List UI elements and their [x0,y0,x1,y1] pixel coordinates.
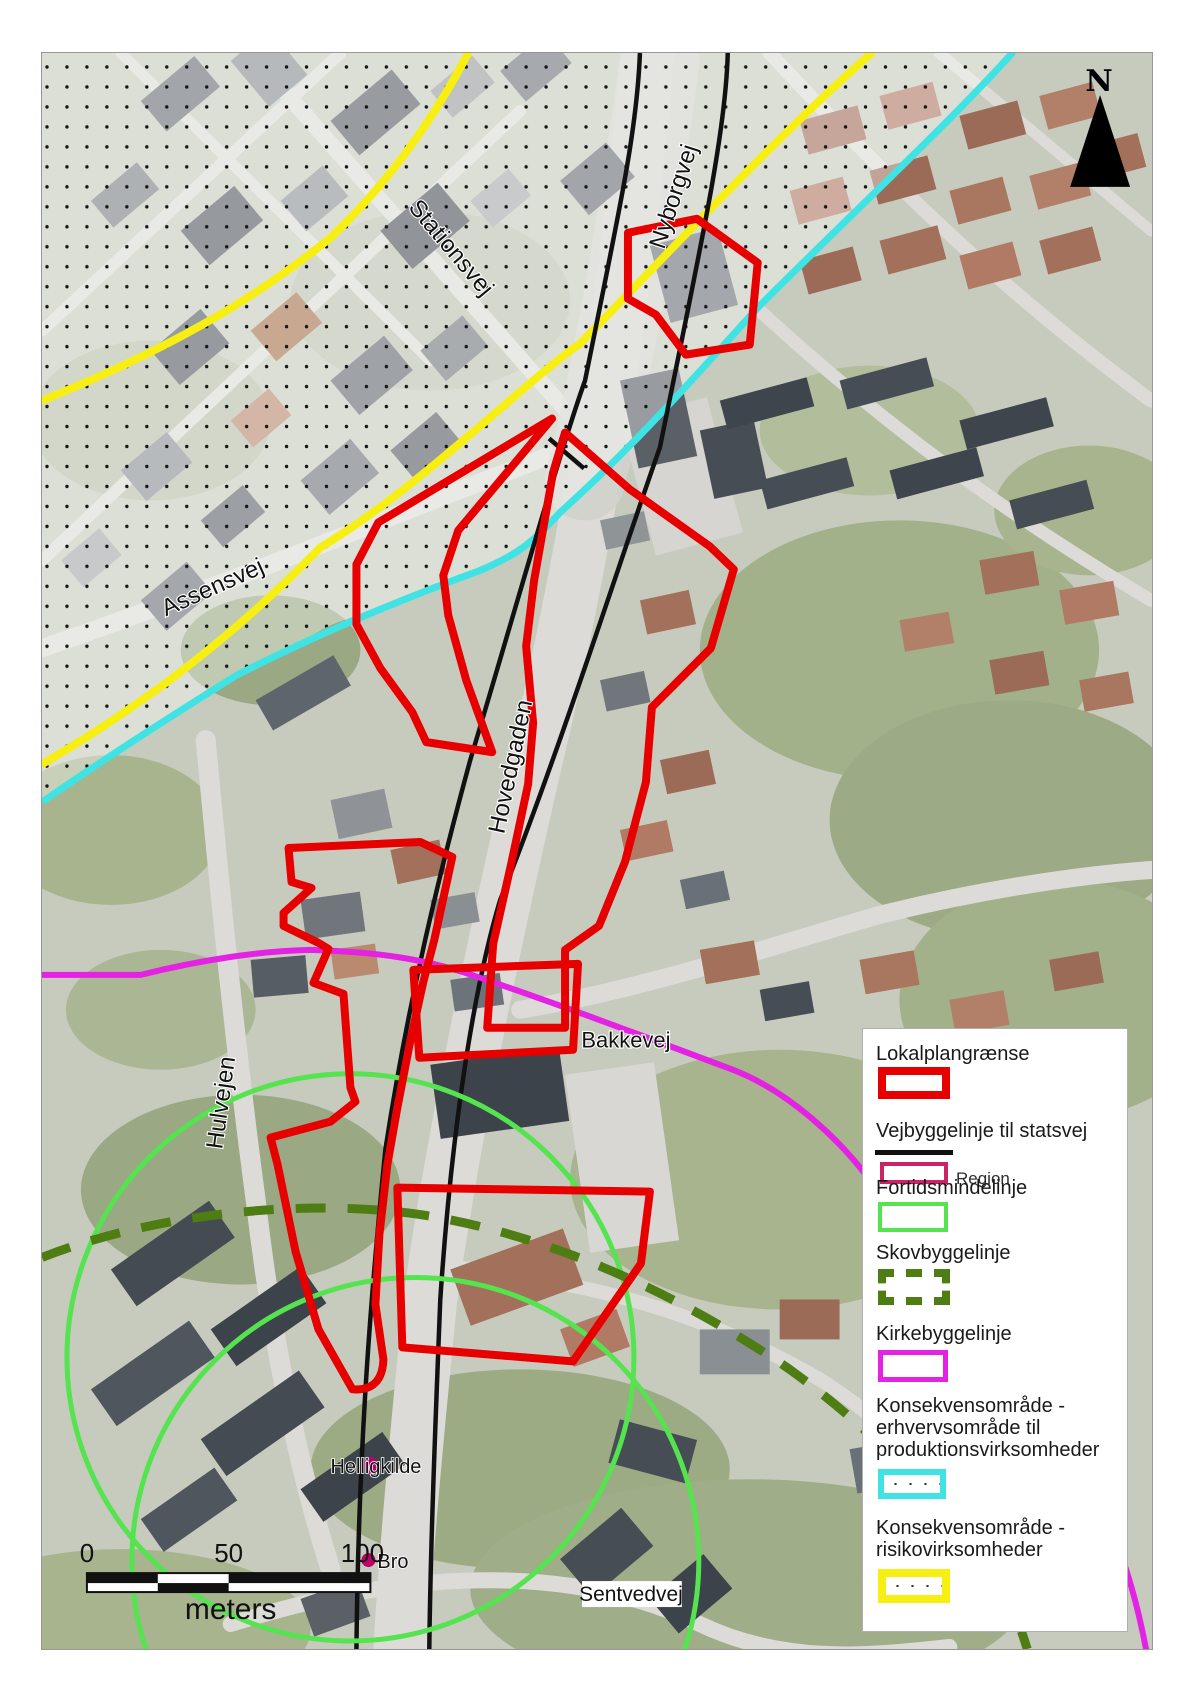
scale-tick-50: 50 [214,1538,243,1568]
legend-box: Lokalplangrænse Vejbyggelinje til statsv… [862,1028,1128,1632]
legend-swatch-konsekvens-risiko [878,1569,950,1603]
legend-swatch-konsekvens-erhverv [878,1469,946,1499]
legend-swatch-fortidsminde [878,1202,948,1232]
street-label-bakkevej: Bakkevej [581,1028,670,1053]
scale-tick-0: 0 [80,1538,94,1568]
legend-label-vejbyggelinje: Vejbyggelinje til statsvej [876,1120,1087,1142]
north-arrow-label: N [1085,64,1112,99]
page: { "streets": { "stationsvej": "Stationsv… [0,0,1200,1696]
legend-label-lokalplan: Lokalplangrænse [876,1043,1029,1065]
legend-label-konsekvens-risiko: Konsekvensområde - risikovirksomheder [876,1517,1065,1561]
street-label-sentvedvej: Sentvedvej [579,1583,683,1606]
legend-label-kirkebyggelinje: Kirkebyggelinje [876,1323,1012,1345]
legend-swatch-vejbyggelinje [875,1150,953,1155]
legend-label-konsekvens-erhverv: Konsekvensområde - erhvervsområde til pr… [876,1395,1099,1461]
legend-label-skovbyggelinje: Skovbyggelinje [876,1242,1011,1264]
marker-label-helligkilde: Helligkilde [330,1456,421,1478]
legend-swatch-kirkebyggelinje [878,1350,948,1382]
legend-label-fortidsminde: Fortidsmindelinje [876,1177,1027,1199]
scale-tick-100: 100 [341,1538,384,1568]
legend-swatch-lokalplan [878,1067,950,1099]
legend-swatch-skovbyggelinje [878,1269,950,1305]
scale-unit-label: meters [185,1593,276,1626]
